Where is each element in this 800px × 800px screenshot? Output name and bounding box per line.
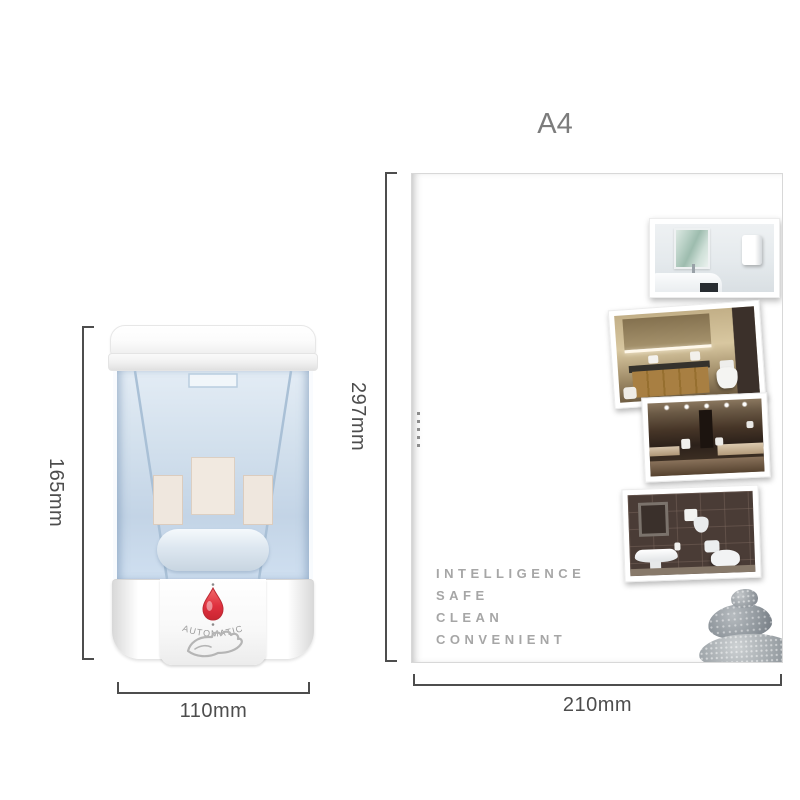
sensor-dot	[212, 623, 215, 626]
mirror-shape	[674, 228, 710, 269]
toilet-shape	[711, 549, 740, 567]
zen-stones-photo	[695, 589, 783, 663]
photo-scene-wood-vanity	[614, 306, 760, 403]
bottle-shape	[674, 543, 681, 550]
wood-vanity-shape	[632, 367, 709, 397]
drop-indicator-icon	[203, 588, 223, 620]
photo-scene-tiled-bathroom	[628, 491, 756, 576]
dispenser-shape	[715, 437, 723, 446]
height-dimension-bracket-dispenser	[82, 326, 94, 660]
width-dimension-bracket-dispenser	[117, 682, 310, 694]
paper-width-label: 210mm	[413, 694, 782, 717]
sensor-dot	[212, 583, 215, 586]
soap-dispenser: AUTOMATIC	[108, 325, 318, 665]
floor-shape	[650, 457, 765, 477]
a4-paper-sheet: INTELLIGENCE SAFE CLEAN CONVENIENT	[411, 173, 783, 663]
pillar-shape	[699, 409, 713, 447]
floor-shape	[630, 565, 755, 577]
spine-text-marks	[417, 412, 420, 448]
counter-shape	[649, 446, 679, 457]
drop-highlight	[207, 601, 213, 611]
photo-scene-bright-bathroom	[655, 224, 774, 292]
toilet-shape	[716, 367, 738, 389]
pump-mechanism-part	[153, 475, 183, 525]
paper-size-title: A4	[495, 108, 615, 141]
mirror-shape	[638, 502, 669, 537]
bathroom-photo-3	[641, 392, 771, 482]
feature-text-intelligence: INTELLIGENCE	[436, 566, 585, 581]
photo-scene-dark-restroom	[647, 399, 764, 477]
product-size-comparison-image: AUTOMATIC 165mm 110mm A4	[0, 0, 800, 800]
pump-mechanism-part	[243, 475, 273, 525]
dispenser-tank	[113, 371, 313, 579]
towel-shape	[700, 283, 718, 292]
bathroom-photo-1	[649, 218, 780, 298]
pump-outlet	[157, 529, 269, 571]
stone	[698, 632, 783, 663]
soap-dispenser-shape	[648, 355, 658, 364]
feature-text-convenient: CONVENIENT	[436, 632, 566, 647]
feature-text-clean: CLEAN	[436, 610, 503, 625]
dispenser-height-label: 165mm	[44, 326, 67, 660]
counter-shape	[718, 442, 764, 455]
bin-shape	[623, 387, 636, 400]
front-panel-graphics: AUTOMATIC	[160, 579, 266, 665]
dispenser-lid	[110, 325, 316, 355]
wall-dispenser-shape	[742, 235, 762, 265]
dispenser-lid-band	[108, 353, 318, 371]
bathroom-photo-4	[621, 485, 761, 583]
height-dimension-bracket-paper	[385, 172, 397, 662]
width-dimension-bracket-paper	[413, 674, 782, 686]
dispenser-front-panel: AUTOMATIC	[160, 579, 266, 665]
dispenser-width-label: 110mm	[117, 700, 310, 723]
soap-dispenser-shape	[690, 351, 700, 360]
paper-height-label: 297mm	[346, 172, 369, 662]
dispenser-shape	[746, 421, 753, 429]
urinal-shape	[693, 517, 709, 534]
dispenser-shape	[681, 439, 691, 449]
feature-text-safe: SAFE	[436, 588, 489, 603]
pump-mechanism-part	[191, 457, 235, 515]
